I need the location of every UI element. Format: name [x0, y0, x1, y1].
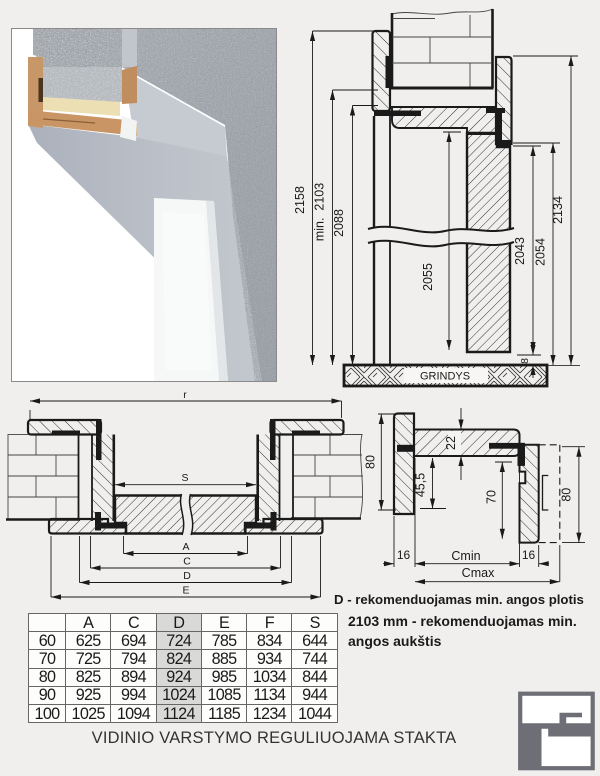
svg-text:45,5: 45,5	[414, 473, 428, 497]
svg-text:Cmin: Cmin	[451, 549, 480, 563]
svg-text:2134: 2134	[551, 196, 565, 224]
svg-text:Cmax: Cmax	[462, 566, 495, 580]
svg-text:16: 16	[397, 548, 411, 562]
svg-text:2043: 2043	[513, 237, 527, 265]
svg-text:16: 16	[522, 548, 536, 562]
svg-text:A: A	[182, 541, 189, 553]
svg-text:2158: 2158	[293, 186, 307, 214]
svg-text:D: D	[183, 570, 191, 582]
svg-text:2088: 2088	[332, 209, 346, 237]
svg-text:E: E	[182, 585, 189, 597]
svg-text:r: r	[183, 389, 187, 401]
svg-text:22: 22	[444, 436, 458, 450]
svg-text:80: 80	[560, 488, 574, 502]
svg-text:80: 80	[364, 455, 378, 469]
svg-text:2054: 2054	[534, 238, 548, 266]
svg-text:2055: 2055	[421, 263, 435, 291]
svg-text:GRINDYS: GRINDYS	[420, 371, 470, 383]
svg-text:8: 8	[519, 358, 531, 364]
svg-text:S: S	[181, 472, 188, 484]
svg-text:70: 70	[485, 490, 499, 504]
svg-text:min. 2103: min. 2103	[313, 183, 327, 241]
svg-text:C: C	[183, 556, 191, 568]
